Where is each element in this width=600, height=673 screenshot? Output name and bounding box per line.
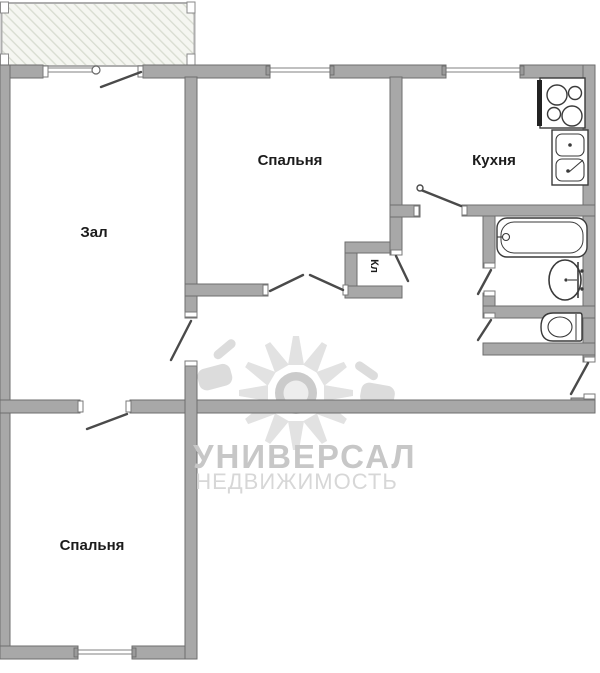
kitchen-label: Кухня — [449, 152, 539, 169]
plan-shape — [187, 54, 195, 66]
plan-shape — [185, 312, 197, 317]
bedroom-top-door-right — [310, 275, 343, 290]
sun-logo-icon — [239, 336, 353, 450]
plan-shape — [270, 68, 330, 72]
washbasin-icon — [549, 260, 584, 300]
plan-shape — [78, 401, 83, 412]
entrance-door — [571, 363, 588, 394]
bedroom-bottom-window — [74, 648, 136, 657]
bedroom-top-door-left — [270, 275, 303, 291]
plan-shape — [261, 340, 289, 373]
wall-segment — [483, 343, 595, 355]
wall-segment — [185, 284, 268, 296]
plan-shape — [1, 2, 9, 13]
plan-shape — [568, 143, 572, 147]
plan-shape — [564, 278, 567, 281]
plan-shape — [520, 66, 524, 75]
plan-shape — [446, 68, 520, 72]
plan-shape — [92, 66, 100, 74]
plan-shape — [48, 68, 94, 72]
wall-segment — [483, 216, 495, 268]
plan-shape — [414, 206, 419, 216]
plan-shape — [263, 285, 268, 295]
living-room-door — [171, 321, 191, 360]
wall-segment — [185, 77, 197, 318]
bedroom-top-window — [266, 66, 334, 75]
wall-segment — [330, 65, 446, 78]
living-room-label: Зал — [59, 224, 129, 241]
kitchen-sink-icon — [552, 130, 588, 185]
plan-shape — [187, 2, 195, 13]
plan-shape — [584, 357, 595, 362]
watermark-subtitle: НЕДВИЖИМОСТЬ — [193, 469, 400, 495]
bedroom-bottom-door — [87, 414, 127, 429]
plan-shape — [185, 361, 197, 366]
toilet-door — [478, 320, 491, 340]
closet-label: Кл — [366, 255, 380, 277]
plan-shape — [552, 130, 588, 185]
plan-shape — [288, 336, 304, 365]
plan-shape — [324, 385, 353, 401]
stove-icon — [537, 78, 585, 128]
plan-shape — [462, 206, 467, 215]
wall-segment — [0, 65, 10, 659]
plan-shape — [442, 66, 446, 75]
plan-shape — [239, 385, 268, 401]
floor-plan-page: Зал Спальня Кухня Кл Спальня УНИВЕРСАЛ Н… — [0, 0, 600, 673]
plan-shape — [537, 80, 542, 126]
bedroom-top-label: Спальня — [240, 152, 340, 169]
plan-shape — [126, 401, 131, 412]
plan-shape — [43, 66, 48, 77]
plan-shape — [580, 287, 583, 290]
plan-shape — [316, 358, 349, 386]
plan-shape — [196, 362, 235, 392]
wall-segment — [345, 286, 402, 298]
balcony — [1, 2, 196, 66]
plan-shape — [243, 358, 276, 386]
bathtub-icon — [497, 218, 587, 257]
plan-shape — [1, 54, 9, 66]
plan-shape — [497, 218, 587, 257]
plan-shape — [2, 3, 195, 66]
plan-shape — [353, 360, 379, 382]
plan-shape — [484, 291, 495, 296]
plan-shape — [330, 66, 334, 75]
thumbs-up-left-icon — [190, 336, 247, 392]
watermark-logo — [190, 336, 400, 450]
wall-segment — [390, 77, 402, 255]
plan-shape — [484, 313, 495, 318]
wall-segment — [185, 363, 197, 659]
balcony-window — [48, 66, 100, 74]
plan-shape — [78, 650, 132, 654]
kitchen-door-hinge — [417, 185, 423, 191]
plan-shape — [580, 269, 583, 272]
floor-plan-drawing — [0, 0, 600, 673]
kitchen-window — [442, 66, 524, 75]
toilet-icon — [541, 313, 582, 341]
plan-shape — [132, 648, 136, 657]
plan-shape — [391, 250, 402, 255]
bedroom-bottom-label: Спальня — [42, 537, 142, 554]
wall-segment — [0, 400, 80, 413]
plan-shape — [212, 337, 238, 361]
plan-shape — [266, 66, 270, 75]
balcony-door — [101, 72, 141, 87]
plan-shape — [303, 340, 331, 373]
closet-door — [396, 256, 408, 281]
plan-shape — [584, 394, 595, 399]
wall-segment — [0, 646, 78, 659]
kitchen-door — [421, 190, 461, 206]
wall-segment — [462, 205, 595, 216]
bathroom-door — [478, 270, 491, 294]
plan-shape — [484, 263, 495, 268]
wall-segment — [143, 65, 270, 78]
plan-shape — [74, 648, 78, 657]
wall-segment — [130, 400, 595, 413]
